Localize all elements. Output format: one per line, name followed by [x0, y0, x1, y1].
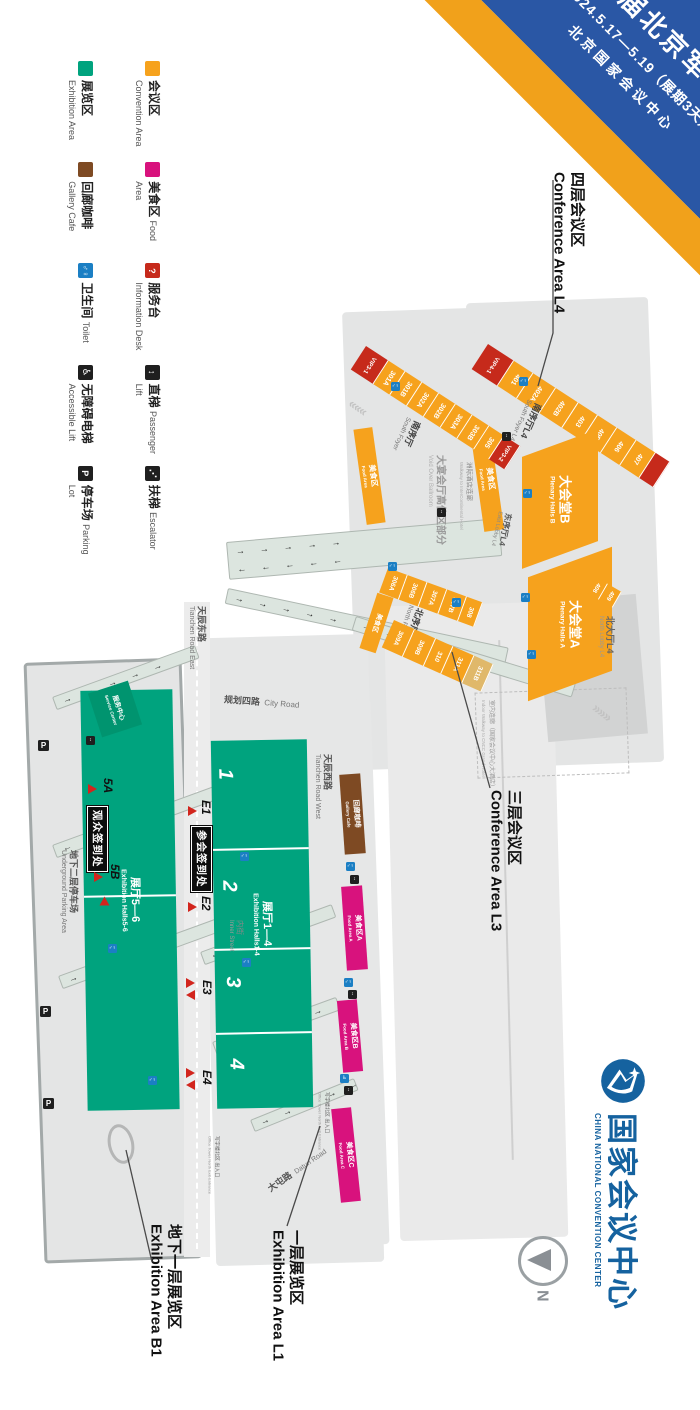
information-desk-icon: ? [145, 263, 160, 278]
entrance-e3-label: E3 [200, 980, 214, 995]
legend-item-exhibition: 展览区 Exhibition Area [28, 58, 95, 159]
lift-icon: ↕ [344, 1086, 353, 1095]
e1-arrow-icon [188, 806, 197, 816]
tianchen-road-east-label: 天辰东路 Tianchen Road East [186, 606, 207, 669]
e3-arrow-icon-2 [186, 990, 195, 1000]
cncc-emblem-icon [600, 1058, 646, 1104]
lift-icon: ↕ [86, 736, 95, 745]
lift-icon: ↕ [348, 990, 357, 999]
legend-item-food: 美食区 Food Area [95, 159, 162, 260]
e4-arrow-icon [186, 1068, 195, 1078]
parking-icon: P [38, 740, 49, 751]
e4-arrow-icon-2 [186, 1080, 195, 1090]
parking-icon: P [40, 1006, 51, 1017]
legend-item-cafe: 回廊咖啡 Gallery Cafe [28, 159, 95, 260]
entrance-5a-label: 5A [101, 778, 115, 793]
e2-arrow-icon [188, 902, 197, 912]
compass-arrow-icon [527, 1249, 551, 1271]
banner-blue-band: 第九届北京军博会 2024.5.17—5.19（展期3天） 北京国家会议中心 [378, 0, 700, 322]
visitor-registration-badge: 观众签到处 [87, 806, 108, 872]
office-tower-entrance-label-2: 写字楼北区 出入口 Office Tower North Exit·Entran… [206, 1136, 219, 1194]
legend-item-convention: 会议区 Convention Area [95, 58, 162, 159]
inner-street-label: 内街 Inner Street [226, 920, 245, 951]
legend-item-lift: ↕直梯 Passenger Lift [95, 362, 162, 463]
lift-icon: ↕ [502, 432, 511, 441]
toilet-icon: ♂♀ [527, 650, 536, 659]
toilet-icon: ♂♀ [148, 1076, 157, 1085]
food-swatch-icon [145, 162, 160, 177]
legend-item-escalator: ⋰扶梯 Escalator [95, 463, 162, 564]
l4-north-lobby-label: 北大厅L4 North Lobby L4 [596, 616, 616, 657]
legend: 会议区 Convention Area 美食区 Food Area ?服务台 I… [28, 58, 162, 564]
lift-icon: ↕ [350, 875, 359, 884]
hall-number-1: 1 [213, 768, 236, 780]
toilet-icon: ♂♀ [452, 598, 461, 607]
toilet-icon: ♂♀ [78, 263, 93, 278]
cncc-hotel-walkway-box [475, 687, 630, 778]
toilet-icon: ♂♀ [523, 489, 532, 498]
gallery-cafe-swatch-icon [78, 162, 93, 177]
toilet-icon: ♂♀ [108, 944, 117, 953]
passenger-lift-icon: ↕ [145, 365, 160, 380]
toilet-icon: ♂♀ [519, 377, 528, 386]
entrance-e1-label: E1 [199, 800, 213, 815]
office-tower-entrance-label: 写字楼北区 出入口 Office Tower North Exit·Entran… [316, 1092, 329, 1150]
b1-area-label: 地下一层展览区 Exhibition Area B1 [146, 1224, 184, 1357]
legend-item-accessible: ♿无障碍电梯 Accessible Lift [28, 362, 95, 463]
legend-item-parking: P停车场 Parking Lot [28, 463, 95, 564]
5a-arrow-icon [88, 784, 97, 794]
toilet-icon: ♂♀ [391, 382, 400, 391]
l4-walkway-note: 室内连廊（国家会议中心大酒店） Indoor Walkway to CNCC G… [480, 700, 495, 790]
toilet-icon: ♂♀ [242, 958, 251, 967]
underground-parking-label: 地下二层停车场 Underground Parking Area [58, 850, 79, 933]
e3-arrow-icon [186, 978, 195, 988]
venue-map-poster: { "banner": { "title": "第九届北京军博会", "date… [0, 0, 700, 1410]
hall-divider [216, 1031, 312, 1035]
parking-icon: P [43, 1098, 54, 1109]
toilet-icon: ♂♀ [346, 862, 355, 871]
event-banner: 第九届北京军博会 2024.5.17—5.19（展期3天） 北京国家会议中心 [350, 0, 700, 350]
accessible-lift-icon: ♿ [78, 365, 93, 380]
compass-circle [518, 1236, 568, 1286]
toilet-icon: ♂♀ [521, 593, 530, 602]
b1-extra-arrow-icon [100, 897, 110, 906]
l3-intercontinental-walkway-label: 洲际酒店连廊 Walkway to InterContinental Hotel [458, 462, 474, 530]
l3-area-label: 三层会议区 Conference Area L3 [486, 790, 524, 931]
legend-item-toilet: ♂♀卫生间 Toilet [28, 260, 95, 361]
participant-registration-badge: 参会签到处 [191, 826, 212, 892]
hall-number-4: 4 [224, 1058, 247, 1070]
exhibition-swatch-icon [78, 61, 93, 76]
toilet-icon: ♂♀ [240, 852, 249, 861]
hall-divider [213, 847, 309, 851]
entrance-5b-label: 5B [108, 864, 122, 879]
l3-ballroom-void-label: 大宴会厅高位区部分 Void Over Ballroom [425, 455, 446, 545]
compass: N [518, 1236, 568, 1302]
escalator-icon: ⋰ [145, 466, 160, 481]
convention-swatch-icon [145, 61, 160, 76]
entrance-e4-label: E4 [200, 1070, 214, 1085]
5b-arrow-icon [94, 872, 103, 882]
cncc-logo: 国家会议中心 CHINA NATIONAL CONVENTION CENTER [592, 1058, 700, 1311]
toilet-icon: ♂♀ [388, 562, 397, 571]
tianchen-road-west-label: 天辰西路 Tianchen Road West [312, 754, 333, 819]
b1-exhibition-hall-5-6: 展厅5—6 Exhibition Halls5-6 [80, 689, 179, 1111]
compass-n-label: N [532, 1290, 550, 1302]
l4-area-label: 四层会议区 Conference Area L4 [549, 172, 587, 313]
lift-icon: ↕ [437, 508, 446, 517]
hall-number-2: 2 [217, 880, 240, 892]
parking-icon: P [78, 466, 93, 481]
cncc-logo-text: 国家会议中心 CHINA NATIONAL CONVENTION CENTER [592, 1113, 640, 1311]
toilet-icon: ♂♀ [344, 978, 353, 987]
hall-number-3: 3 [221, 976, 244, 988]
entrance-e2-label: E2 [199, 896, 213, 911]
accessible-lift-icon: ♿ [340, 1074, 349, 1083]
l1-area-label: 一层展览区 Exhibition Area L1 [268, 1230, 306, 1361]
legend-item-infodesk: ?服务台 Information Desk [95, 260, 162, 361]
